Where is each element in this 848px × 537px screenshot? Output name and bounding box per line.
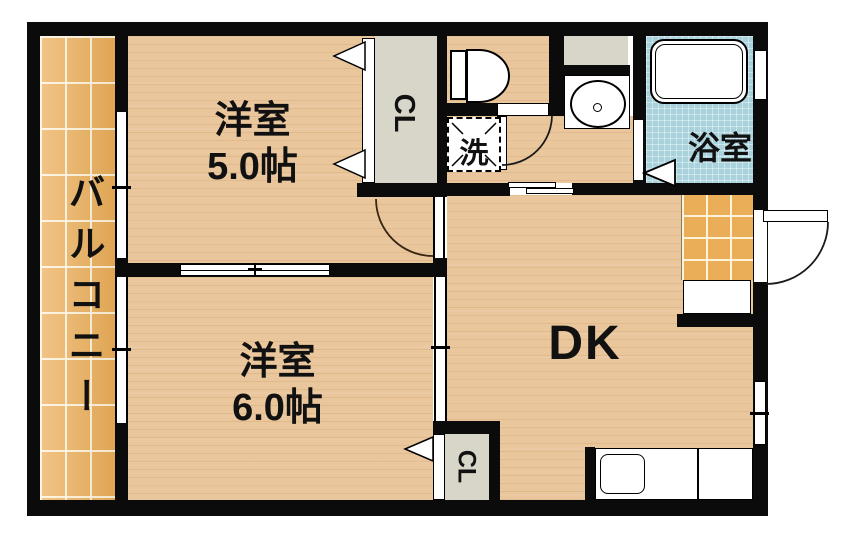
room6-dk-sliding-partition: [434, 277, 447, 421]
wall-washroom-bottom-left: [440, 183, 510, 196]
closet-bottom-door: [433, 434, 445, 500]
wall-toilet-bottom: [440, 103, 497, 116]
entrance-tile-floor: [681, 193, 753, 280]
window-tick: [112, 186, 131, 189]
shoe-cabinet: [683, 280, 751, 314]
wall-kitchen-stub: [585, 447, 595, 503]
wall-balcony-stub-top: [115, 36, 128, 112]
room5-name: 洋室: [145, 98, 360, 144]
closet-bottom-label: CL: [453, 439, 480, 495]
wall-outer-bottom: [27, 500, 768, 516]
bathroom-door-opening: [634, 120, 643, 180]
floor-plan: バルコニー 洋室 5.0帖 洋室 6.0帖 DK 浴室 洗 CL CL: [0, 0, 848, 537]
kitchen-counter-divider: [697, 448, 699, 500]
room5-label: 洋室 5.0帖: [145, 98, 360, 191]
window-tick: [431, 346, 450, 349]
toilet-door: [497, 103, 549, 116]
wall-washroom-bottom-right: [572, 183, 753, 195]
bathtub-icon: [650, 39, 748, 104]
wall-balcony-stub-bottom: [115, 423, 128, 500]
washroom-sliding-door-panel-2: [526, 188, 574, 194]
washbasin-drain-icon: [593, 103, 602, 112]
wall-room5-door-stub: [433, 258, 447, 277]
dk-label: DK: [535, 316, 635, 371]
washbasin-upper-cabinet: [564, 36, 628, 65]
entry-door-leaf: [763, 210, 828, 222]
bathroom-label: 浴室: [684, 123, 756, 169]
wall-closet-top-bottom: [357, 183, 447, 197]
wall-outer-left: [27, 22, 40, 516]
room6-label: 洋室 6.0帖: [170, 339, 385, 432]
wall-toilet-right: [549, 36, 564, 116]
bathtub-inner-line: [655, 44, 743, 99]
room5-door-opening: [433, 197, 445, 258]
entry-door-arc: [766, 222, 828, 284]
sliding-door-tick: [248, 268, 262, 270]
wall-entrance-stub: [677, 314, 753, 327]
bathroom-window: [754, 50, 767, 100]
laundry-label: 洗: [447, 130, 501, 172]
wall-closet-bottom-frame-right: [489, 421, 500, 501]
window-tick: [112, 348, 131, 351]
toilet-tank-icon: [450, 50, 467, 100]
balcony-label: バルコニー: [56, 150, 110, 450]
kitchen-sink-icon: [600, 454, 645, 494]
room5-size: 5.0帖: [145, 144, 360, 190]
wall-outer-top: [27, 22, 768, 36]
closet-top-door: [362, 38, 375, 183]
balcony-window-room5: [115, 112, 128, 258]
room6-name: 洋室: [170, 339, 385, 385]
wall-washbasin-top: [564, 65, 630, 75]
room6-size: 6.0帖: [170, 385, 385, 431]
closet-top-label: CL: [389, 81, 419, 145]
window-tick: [750, 412, 769, 415]
